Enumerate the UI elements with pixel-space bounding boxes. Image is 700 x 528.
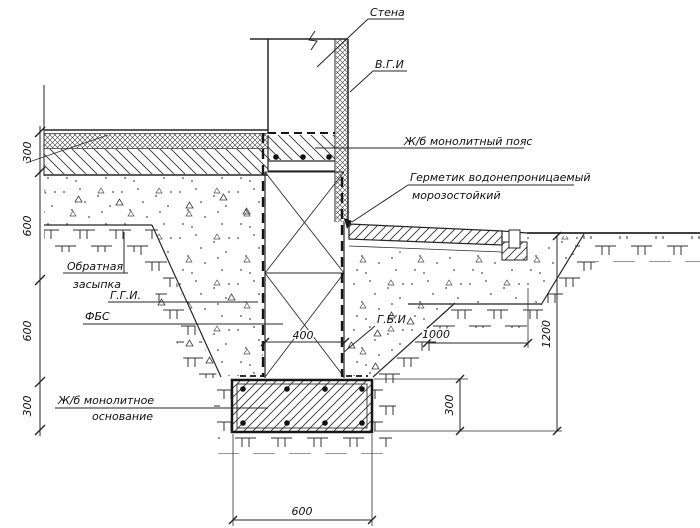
rebar-dot [359, 386, 365, 392]
floor-assembly [26, 85, 268, 176]
label-belt: Ж/б монолитный пояс [403, 135, 532, 148]
label-gbi: Г.Б.И [377, 313, 406, 326]
dim-1000: 1000 [422, 328, 450, 341]
rebar-dot [322, 386, 328, 392]
rebar-dot [284, 420, 290, 426]
floor-screed-layer [44, 149, 268, 174]
wall-break-symbol [309, 31, 317, 50]
monolithic-footing [232, 376, 372, 432]
dimension-wall-width: 400 [261, 329, 349, 346]
dim-400: 400 [293, 329, 314, 342]
leader-sealant [352, 185, 408, 222]
label-wall: Стена [370, 6, 405, 19]
label-sealant-1: Герметик водонепроницаемый [410, 171, 591, 184]
label-sealant-2: морозостойкий [412, 189, 501, 202]
rebar-dot [240, 386, 246, 392]
foundation-section-drawing: 300 600 600 300 400 1000 1200 300 [0, 0, 700, 528]
dim-left-600-upper: 600 [21, 216, 34, 237]
label-fbs: ФБС [85, 310, 110, 323]
dim-left-300-top: 300 [21, 142, 34, 163]
drainage-notch [509, 230, 520, 248]
rebar-dot [359, 420, 365, 426]
rebar-dot [284, 386, 290, 392]
label-ggi: Г.Г.И. [110, 289, 141, 302]
drawing-canvas: 300 600 600 300 400 1000 1200 300 [0, 0, 700, 528]
rebar-dot [240, 420, 246, 426]
label-base-1: Ж/б монолитное [57, 394, 154, 407]
label-vgi: В.Г.И [375, 58, 404, 71]
floor-insulation-layer [44, 134, 268, 148]
dim-1200: 1200 [540, 320, 553, 348]
dim-600: 600 [292, 505, 313, 518]
rebar-dot [300, 154, 306, 160]
dimension-left-chain: 300 600 600 300 [21, 126, 45, 436]
rebar-dot [326, 154, 332, 160]
label-backfill-1: Обратная [67, 260, 124, 273]
dim-left-600-lower: 600 [21, 321, 34, 342]
label-base-2: основание [92, 410, 153, 423]
dim-300-footing: 300 [443, 395, 456, 416]
leader-vgi [350, 71, 373, 92]
monolithic-belt [268, 133, 335, 171]
dim-left-300-bottom: 300 [21, 396, 34, 417]
rebar-dot [322, 420, 328, 426]
rebar-dot [273, 154, 279, 160]
